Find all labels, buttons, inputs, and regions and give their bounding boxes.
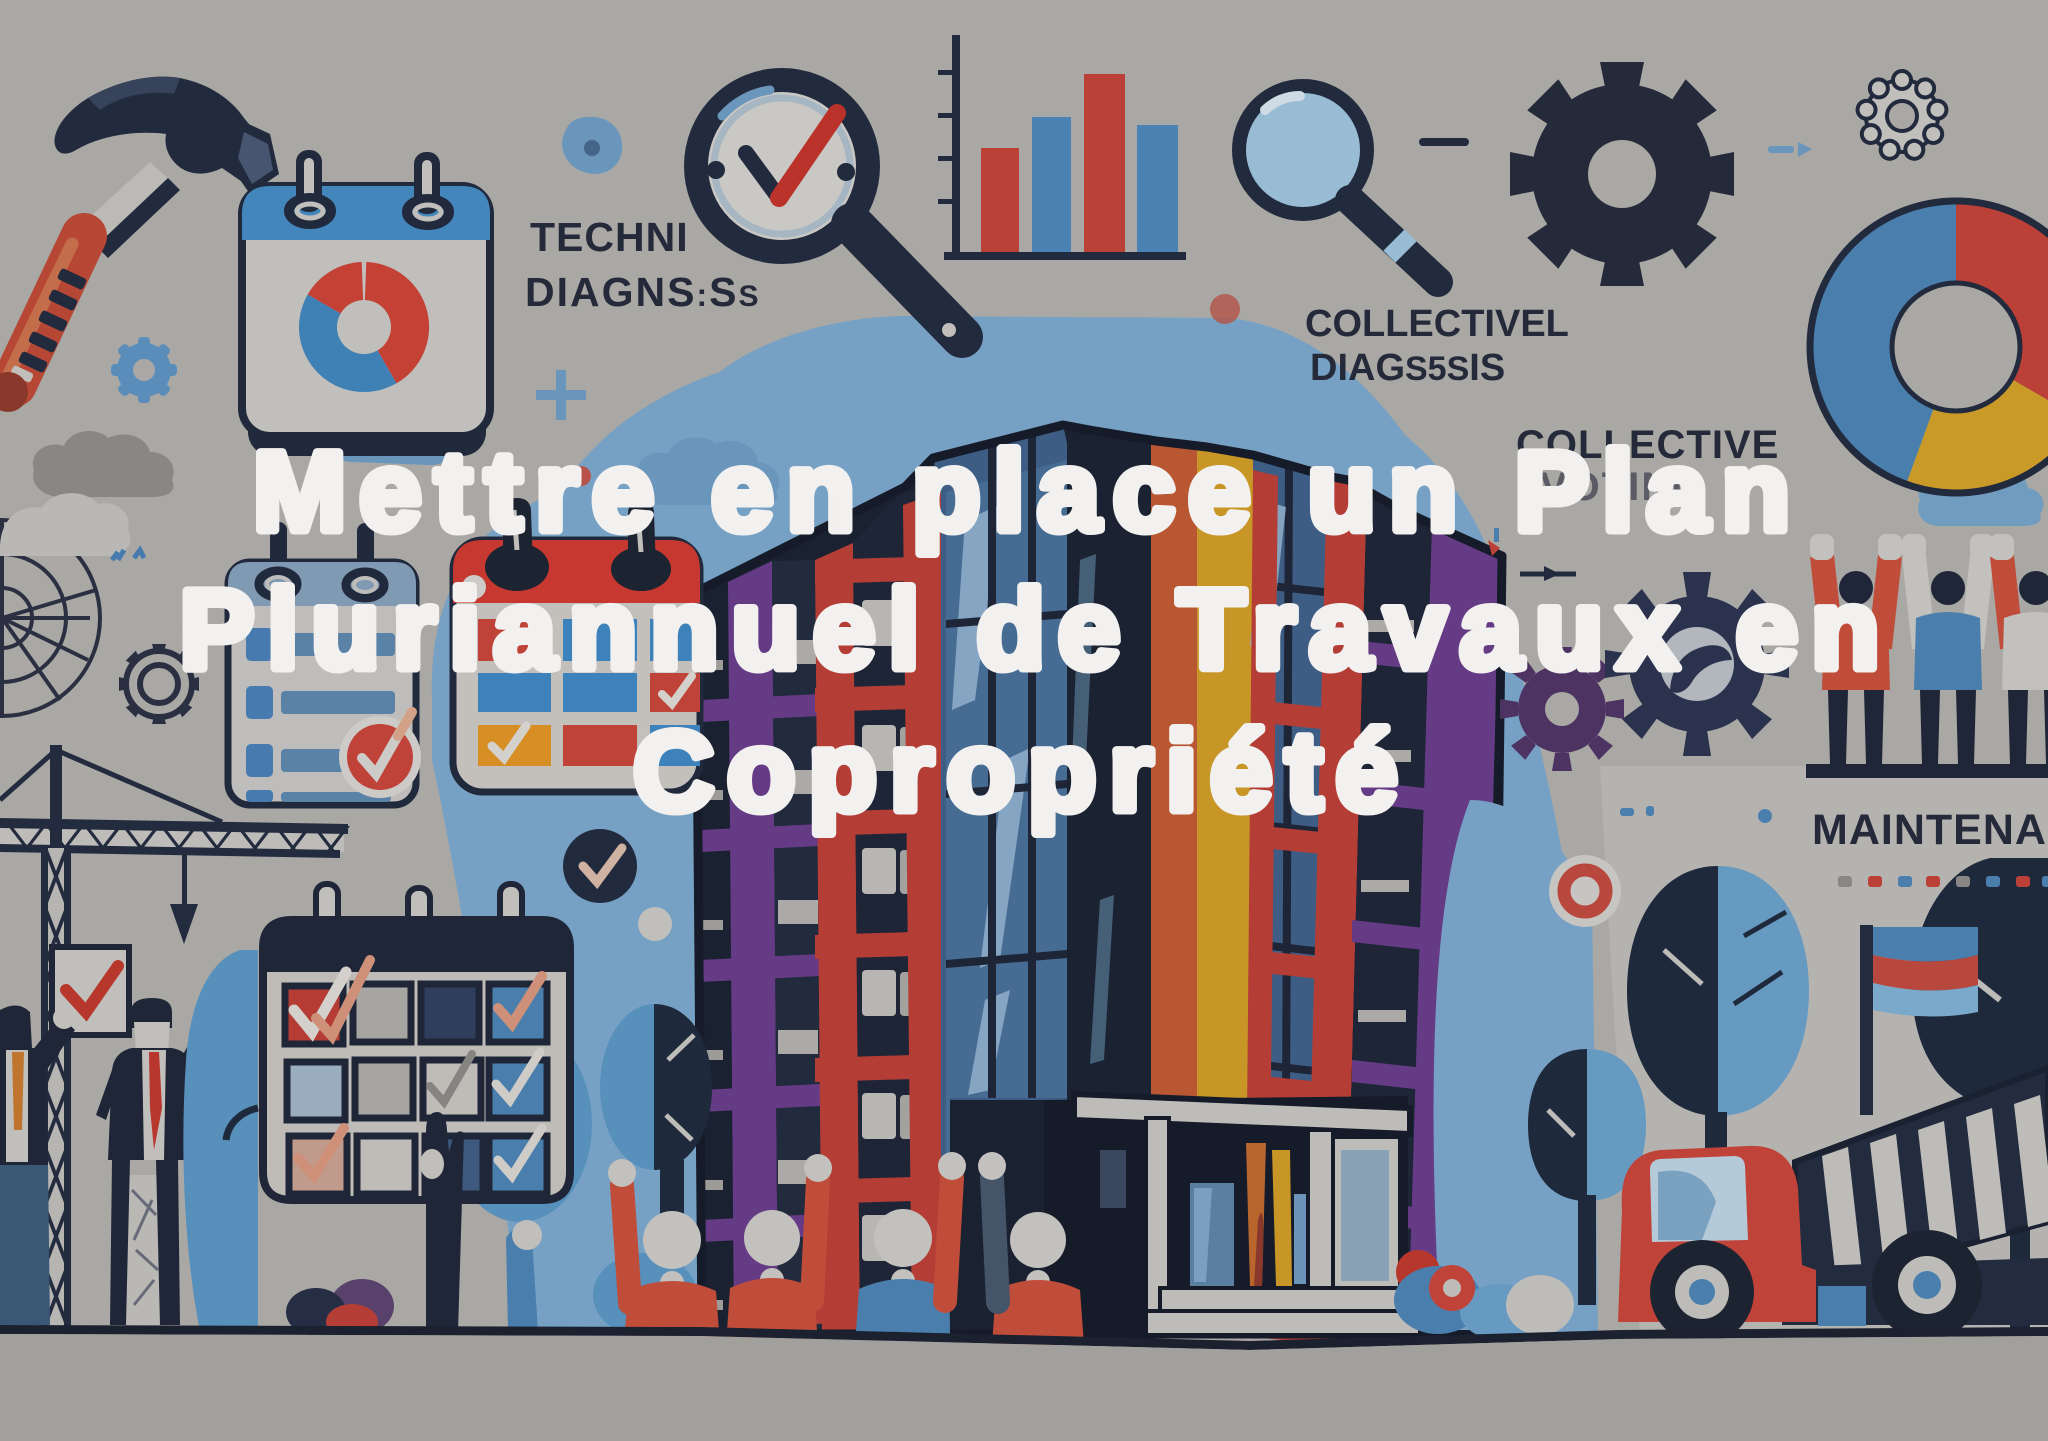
svg-text:Mettre en place un Plan: Mettre en place un Plan bbox=[253, 429, 1803, 554]
svg-text:Copropriété: Copropriété bbox=[633, 709, 1411, 834]
svg-text:Pluriannuel de Travaux en: Pluriannuel de Travaux en bbox=[179, 567, 1892, 692]
